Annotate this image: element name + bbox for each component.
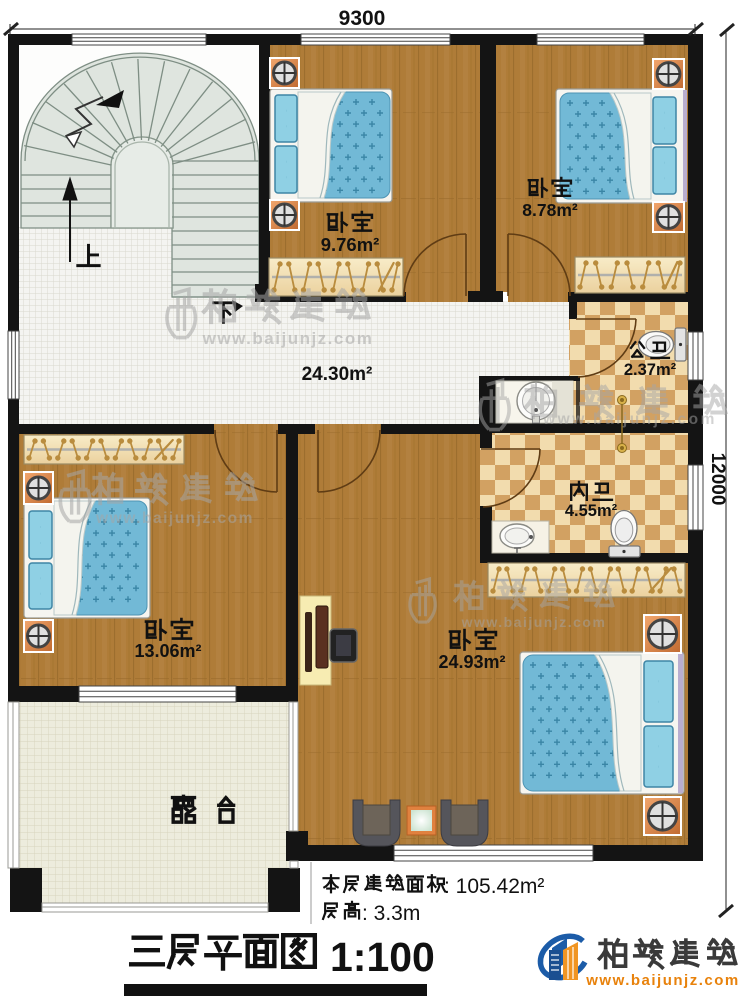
svg-text:9300: 9300 [339, 7, 386, 30]
svg-text:24.30m²: 24.30m² [302, 364, 373, 385]
svg-text:1:100: 1:100 [330, 934, 435, 980]
svg-text:8.78m²: 8.78m² [522, 200, 578, 220]
svg-text:: 105.42m²: : 105.42m² [444, 875, 544, 898]
svg-text:24.93m²: 24.93m² [438, 652, 505, 672]
svg-text:2.37m²: 2.37m² [624, 361, 677, 379]
svg-text:4.55m²: 4.55m² [565, 502, 618, 520]
svg-text:www.baijunjz.com: www.baijunjz.com [95, 510, 254, 527]
svg-text:www.baijunjz.com: www.baijunjz.com [461, 614, 607, 630]
svg-text:www.baijunjz.com: www.baijunjz.com [542, 411, 717, 428]
svg-text:12000: 12000 [707, 453, 728, 506]
svg-text:13.06m²: 13.06m² [134, 641, 201, 661]
svg-text:: 3.3m: : 3.3m [362, 902, 420, 925]
svg-text:www.baijunjz.com: www.baijunjz.com [202, 329, 374, 348]
svg-text:www.baijunjz.com: www.baijunjz.com [585, 972, 739, 989]
svg-text:9.76m²: 9.76m² [321, 234, 380, 255]
